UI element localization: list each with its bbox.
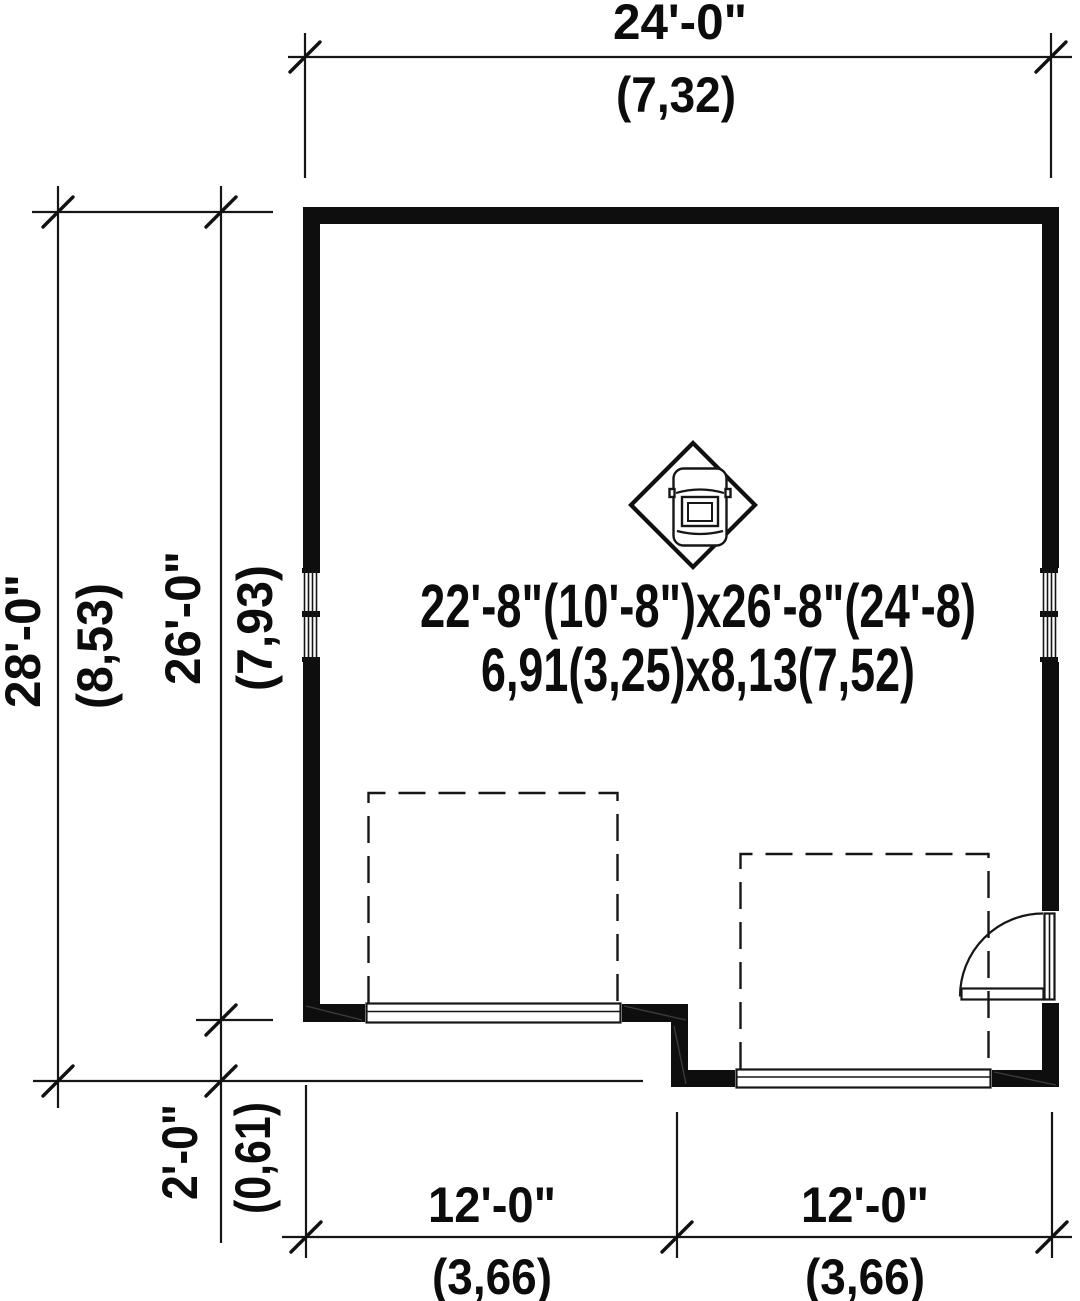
bottom-left-bay-metric-label: (3,66) — [432, 1249, 552, 1301]
car-diamond — [631, 443, 755, 567]
garage-door-left — [367, 1004, 621, 1023]
bottom-right-bay-imperial-label: 12'-0" — [801, 1177, 929, 1233]
left-offset-metric-label: (0,61) — [225, 1102, 281, 1214]
dimension-bottom: 12'-0" (3,66) 12'-0" (3,66) — [282, 1085, 1072, 1301]
floor-plan-svg: 24'-0" (7,32) 28'-0" (8,53) 26'-0" (7,93… — [0, 0, 1080, 1301]
door-swing-arc — [960, 914, 1043, 997]
left-main-metric-label: (7,93) — [227, 565, 283, 691]
car-icon — [670, 469, 731, 546]
left-offset-imperial-label: 2'-0" — [152, 1104, 208, 1200]
room-size-metric-label: 6,91(3,25)x8,13(7,52) — [481, 636, 915, 704]
floor-plan-page: 24'-0" (7,32) 28'-0" (8,53) 26'-0" (7,93… — [0, 0, 1080, 1301]
parking-stall-right-dashed — [741, 854, 989, 1069]
top-width-imperial-label: 24'-0" — [613, 0, 747, 50]
left-main-imperial-label: 26'-0" — [155, 551, 211, 685]
top-width-metric-label: (7,32) — [616, 67, 736, 123]
bottom-left-bay-imperial-label: 12'-0" — [428, 1177, 556, 1233]
bottom-right-bay-metric-label: (3,66) — [805, 1249, 925, 1301]
dimension-left: 28'-0" (8,53) 26'-0" (7,93) 2'-0" (0,61) — [0, 186, 643, 1243]
parking-stall-left-dashed — [369, 793, 618, 1003]
room-size-annotation: 22'-8"(10'-8")x26'-8"(24'-8) 6,91(3,25)x… — [420, 572, 976, 704]
wall-top — [303, 207, 1059, 224]
left-overall-metric-label: (8,53) — [67, 583, 123, 709]
garage-door-right — [737, 1070, 991, 1088]
door-leaf — [962, 989, 1044, 1000]
dimension-top: 24'-0" (7,32) — [288, 0, 1072, 178]
left-overall-imperial-label: 28'-0" — [0, 574, 51, 708]
room-size-imperial-label: 22'-8"(10'-8")x26'-8"(24'-8) — [420, 572, 976, 640]
